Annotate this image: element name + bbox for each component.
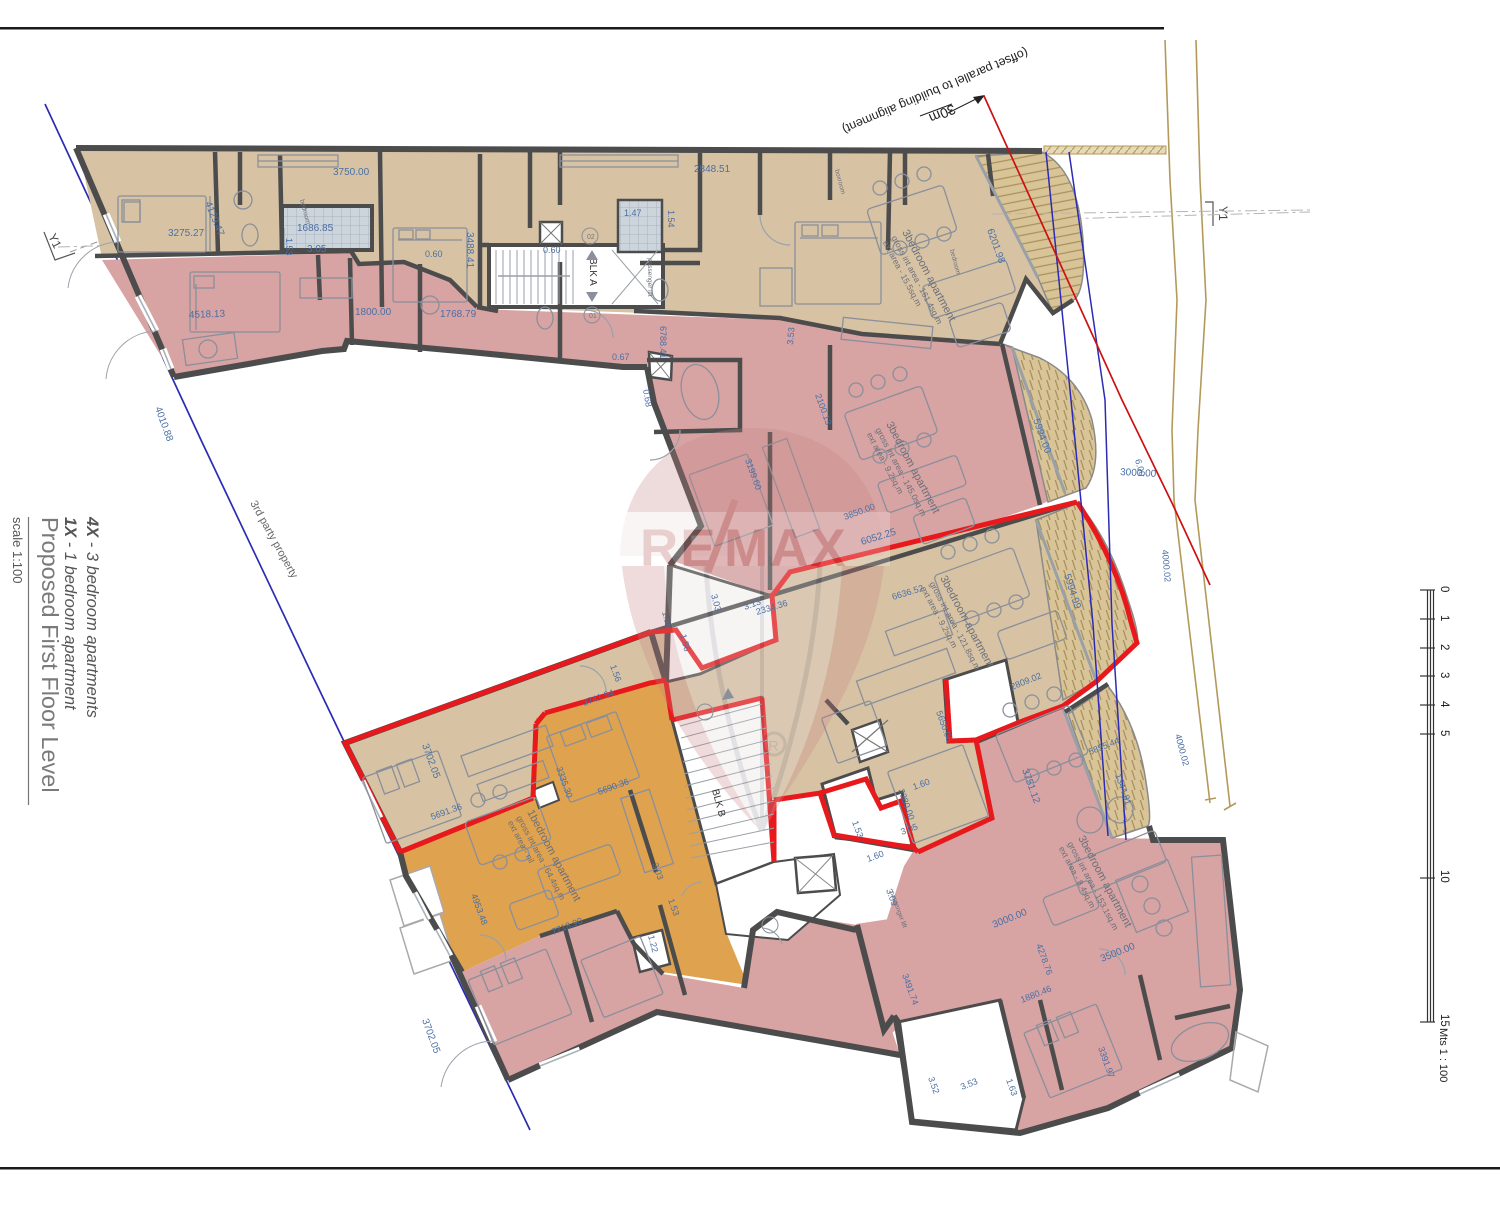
svg-text:02: 02 (587, 234, 595, 241)
svg-text:3.05: 3.05 (307, 244, 327, 255)
svg-text:R: R (768, 738, 779, 755)
svg-text:3.53: 3.53 (785, 327, 796, 345)
svg-text:4X - 3 bedroom apartments: 4X - 3 bedroom apartments (83, 516, 101, 718)
svg-text:5: 5 (1438, 730, 1450, 736)
svg-text:1: 1 (1438, 615, 1450, 621)
svg-text:2: 2 (1438, 644, 1450, 650)
svg-text:0.67: 0.67 (612, 352, 630, 362)
svg-text:10: 10 (1438, 870, 1450, 883)
svg-text:1.53: 1.53 (284, 238, 294, 256)
svg-text:1.47: 1.47 (624, 208, 642, 218)
svg-text:0.60: 0.60 (425, 249, 443, 259)
svg-text:15: 15 (1438, 1014, 1450, 1027)
svg-text:3750.00: 3750.00 (333, 167, 370, 178)
svg-text:MAX: MAX (724, 519, 848, 578)
svg-text:BLK A: BLK A (587, 258, 598, 286)
svg-text:3: 3 (1438, 672, 1450, 678)
svg-text:3275.27: 3275.27 (168, 228, 205, 239)
svg-text:1.54: 1.54 (666, 210, 676, 228)
svg-text:6788.41: 6788.41 (658, 326, 668, 359)
svg-text:1686.85: 1686.85 (297, 223, 334, 234)
svg-text:0: 0 (1438, 586, 1450, 592)
svg-text:1800.00: 1800.00 (355, 307, 392, 318)
svg-text:passenger lift: passenger lift (646, 258, 653, 297)
svg-text:Y1: Y1 (1216, 206, 1230, 221)
svg-text:4518.13: 4518.13 (189, 309, 226, 321)
svg-text:Proposed First Floor Level: Proposed First Floor Level (37, 517, 63, 793)
svg-text:1768.79: 1768.79 (440, 309, 477, 320)
svg-text:01: 01 (589, 313, 597, 320)
svg-text:4: 4 (1438, 701, 1450, 708)
svg-text:scale 1:100: scale 1:100 (10, 517, 25, 584)
svg-text:2848.51: 2848.51 (694, 164, 731, 175)
svg-text:0.60: 0.60 (543, 245, 561, 255)
svg-text:Mts 1 : 100: Mts 1 : 100 (1437, 1028, 1449, 1082)
svg-text:3488.41: 3488.41 (464, 232, 475, 269)
